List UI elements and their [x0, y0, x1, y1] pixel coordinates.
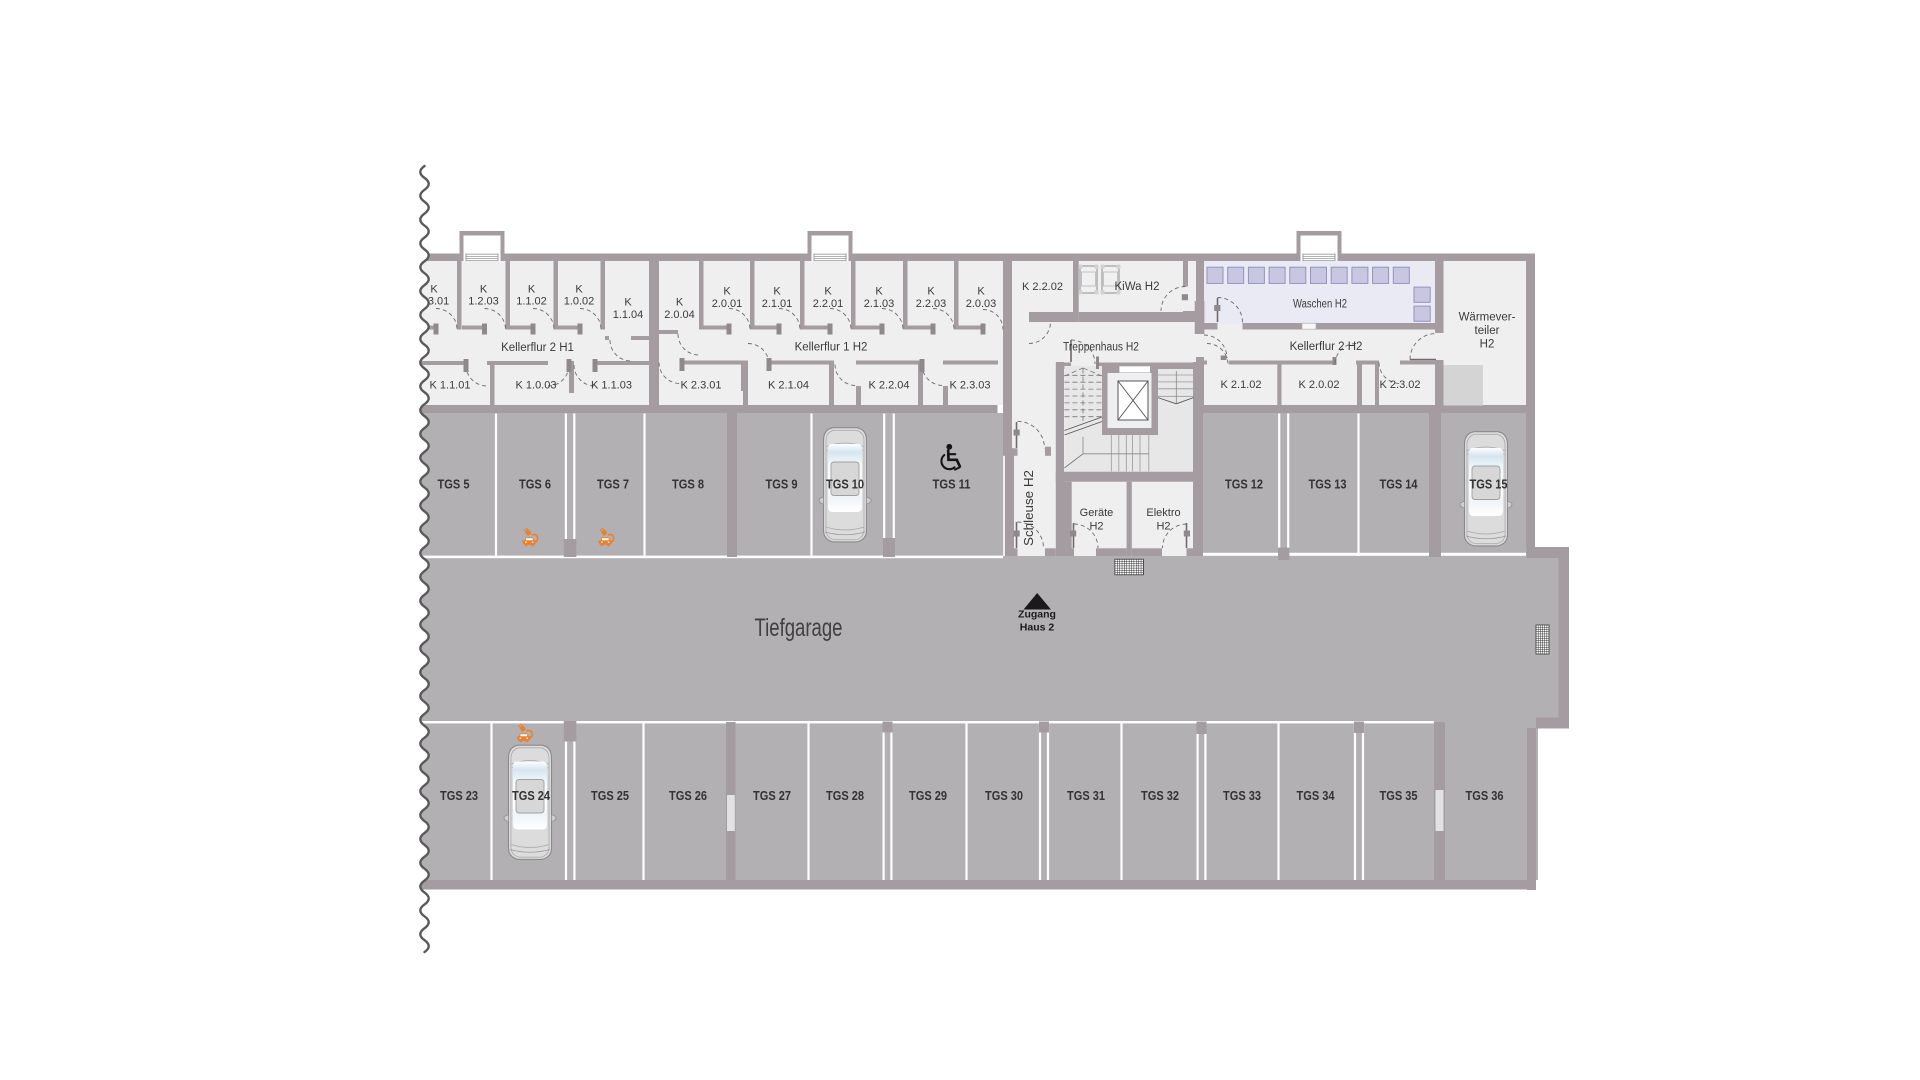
svg-text:Kellerflur 2 H1: Kellerflur 2 H1 [501, 342, 574, 354]
svg-text:K: K [480, 284, 488, 296]
svg-text:K 1.0.03: K 1.0.03 [516, 380, 557, 392]
svg-text:K: K [773, 286, 781, 298]
svg-text:TGS 28: TGS 28 [826, 788, 864, 803]
svg-text:2.1.03: 2.1.03 [864, 298, 895, 310]
svg-text:Elektro: Elektro [1146, 507, 1180, 519]
svg-text:K 2.2.04: K 2.2.04 [869, 380, 910, 392]
svg-text:K 1.1.01: K 1.1.01 [430, 380, 471, 392]
svg-text:TGS 29: TGS 29 [909, 788, 947, 803]
svg-text:2.0.01: 2.0.01 [712, 298, 743, 310]
svg-text:K: K [875, 286, 883, 298]
svg-text:TGS 15: TGS 15 [1470, 477, 1508, 492]
svg-text:2.0.04: 2.0.04 [664, 309, 695, 321]
svg-text:TGS 30: TGS 30 [985, 788, 1023, 803]
svg-text:Tiefgarage: Tiefgarage [755, 614, 843, 642]
svg-text:TGS 6: TGS 6 [519, 477, 551, 492]
svg-text:1.0.02: 1.0.02 [564, 296, 595, 308]
svg-text:Geräte: Geräte [1080, 507, 1114, 519]
svg-text:K: K [927, 286, 935, 298]
svg-text:H2: H2 [1480, 339, 1495, 351]
svg-text:Waschen H2: Waschen H2 [1293, 299, 1347, 311]
svg-text:K: K [528, 284, 536, 296]
svg-text:TGS 26: TGS 26 [669, 788, 707, 803]
svg-text:TGS 10: TGS 10 [826, 477, 864, 492]
svg-text:K: K [575, 284, 583, 296]
svg-text:K 2.3.02: K 2.3.02 [1380, 379, 1421, 391]
svg-text:TGS 13: TGS 13 [1309, 477, 1347, 492]
svg-text:K: K [723, 286, 731, 298]
svg-text:KiWa H2: KiWa H2 [1115, 281, 1160, 293]
svg-text:2.2.03: 2.2.03 [916, 298, 947, 310]
svg-text:2.1.01: 2.1.01 [762, 298, 793, 310]
svg-text:TGS 31: TGS 31 [1067, 788, 1105, 803]
svg-text:TGS 34: TGS 34 [1297, 788, 1336, 803]
svg-text:Haus 2: Haus 2 [1020, 622, 1055, 634]
svg-text:Kellerflur 2 H2: Kellerflur 2 H2 [1290, 341, 1363, 353]
svg-text:TGS 36: TGS 36 [1466, 788, 1504, 803]
svg-text:TGS 14: TGS 14 [1380, 477, 1419, 492]
svg-text:K 2.1.02: K 2.1.02 [1221, 379, 1262, 391]
svg-text:TGS 32: TGS 32 [1141, 788, 1179, 803]
svg-text:TGS 8: TGS 8 [672, 477, 704, 492]
svg-text:2.2.01: 2.2.01 [813, 298, 844, 310]
svg-text:K: K [624, 297, 632, 309]
svg-text:Kellerflur 1 H2: Kellerflur 1 H2 [795, 342, 868, 354]
svg-text:K 2.1.04: K 2.1.04 [768, 380, 809, 392]
svg-text:H2: H2 [1156, 521, 1170, 533]
svg-text:K 2.0.02: K 2.0.02 [1299, 379, 1340, 391]
svg-text:H2: H2 [1089, 521, 1103, 533]
svg-text:TGS 5: TGS 5 [438, 477, 470, 492]
svg-text:1.2.03: 1.2.03 [468, 296, 499, 308]
svg-text:K 2.2.02: K 2.2.02 [1022, 281, 1063, 293]
svg-text:Zugang: Zugang [1018, 609, 1056, 621]
svg-text:K: K [430, 284, 438, 296]
svg-text:K 2.3.03: K 2.3.03 [950, 380, 991, 392]
svg-text:Treppenhaus H2: Treppenhaus H2 [1063, 342, 1139, 354]
svg-text:K: K [977, 286, 985, 298]
svg-text:TGS 11: TGS 11 [933, 477, 971, 492]
svg-text:Wärmever-: Wärmever- [1459, 312, 1516, 324]
svg-text:TGS 24: TGS 24 [512, 788, 551, 803]
svg-text:teiler: teiler [1475, 325, 1500, 337]
svg-text:TGS 27: TGS 27 [753, 788, 791, 803]
svg-text:TGS 7: TGS 7 [597, 477, 629, 492]
svg-text:K 2.3.01: K 2.3.01 [681, 380, 722, 392]
svg-text:TGS 33: TGS 33 [1223, 788, 1261, 803]
svg-text:1.1.02: 1.1.02 [516, 296, 547, 308]
svg-text:TGS 12: TGS 12 [1225, 477, 1263, 492]
svg-text:K 1.1.03: K 1.1.03 [591, 380, 632, 392]
svg-text:TGS 25: TGS 25 [591, 788, 629, 803]
svg-text:K: K [676, 297, 684, 309]
svg-text:TGS 9: TGS 9 [766, 477, 798, 492]
svg-text:Schleuse H2: Schleuse H2 [1021, 470, 1036, 546]
svg-text:TGS 35: TGS 35 [1380, 788, 1418, 803]
svg-text:2.0.03: 2.0.03 [966, 298, 997, 310]
svg-text:1.1.04: 1.1.04 [613, 309, 644, 321]
svg-text:K: K [824, 286, 832, 298]
svg-text:TGS 23: TGS 23 [440, 788, 478, 803]
